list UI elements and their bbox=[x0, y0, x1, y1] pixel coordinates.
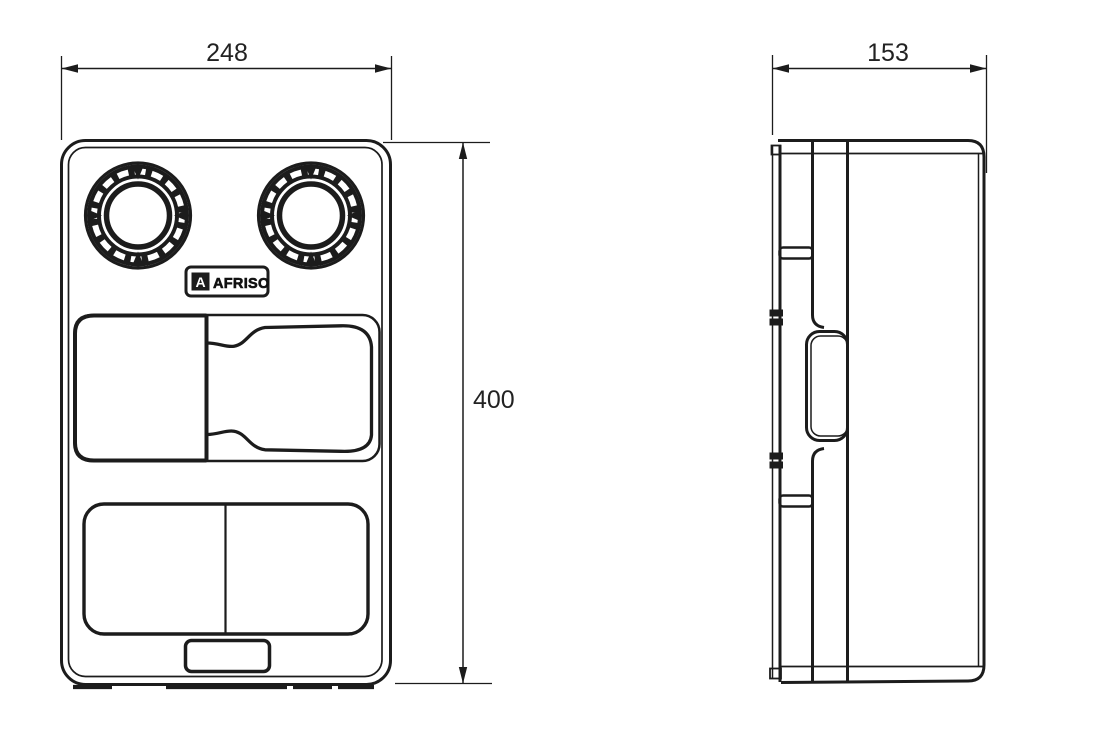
logo-mark-letter: A bbox=[195, 274, 205, 290]
front-view: A AFRISO bbox=[62, 141, 391, 688]
arrowhead-right-icon bbox=[970, 64, 987, 72]
afriso-logo: A AFRISO bbox=[186, 267, 270, 296]
middle-panel-left-compartment bbox=[75, 316, 207, 461]
bottom-tab bbox=[186, 641, 270, 672]
middle-panel-outline bbox=[75, 315, 380, 461]
cover-back-edge-lower bbox=[813, 449, 825, 682]
technical-drawing-canvas: A AFRISO bbox=[0, 0, 1100, 733]
arrowhead-left-icon bbox=[773, 64, 790, 72]
dimension-front-height: 400 bbox=[383, 143, 515, 684]
grip-handle bbox=[807, 332, 848, 441]
bottom-panel bbox=[84, 504, 368, 634]
arrowhead-down-icon bbox=[459, 667, 467, 684]
technical-drawing: A AFRISO bbox=[0, 0, 1100, 733]
arrowhead-right-icon bbox=[375, 64, 392, 72]
dimension-front-width: 248 bbox=[62, 39, 392, 140]
dimension-front-width-label: 248 bbox=[206, 39, 248, 67]
insulation-contour bbox=[207, 326, 372, 452]
right-knob bbox=[259, 163, 364, 268]
dimension-front-height-label: 400 bbox=[473, 386, 515, 414]
wall-plate-lower-slot bbox=[780, 496, 813, 507]
cover-back-edge-upper bbox=[813, 141, 825, 328]
side-housing-outline bbox=[778, 141, 984, 683]
wall-plate-upper-slot bbox=[780, 248, 813, 259]
left-knob bbox=[86, 163, 191, 268]
middle-panel bbox=[75, 315, 380, 461]
arrowhead-up-icon bbox=[459, 143, 467, 160]
side-view bbox=[770, 141, 985, 683]
arrowhead-left-icon bbox=[62, 64, 79, 72]
logo-text: AFRISO bbox=[213, 276, 270, 292]
dimension-side-depth-label: 153 bbox=[867, 39, 909, 67]
